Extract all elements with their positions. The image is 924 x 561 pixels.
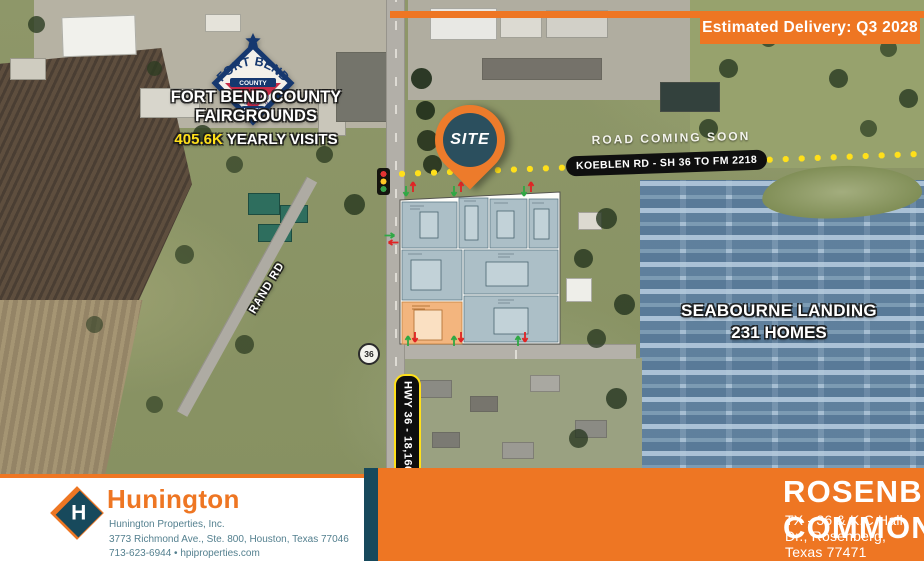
delivery-badge: Estimated Delivery: Q3 2028 <box>700 12 920 44</box>
hunington-logo-letter: H <box>71 502 86 526</box>
seabourne-name: SEABOURNE LANDING <box>648 300 910 322</box>
highway-36-shield: 36 <box>358 343 380 365</box>
project-address: TX - 36 & K.C Hall Dr., Rosenberg, Texas… <box>785 512 924 560</box>
pavilion-roof <box>248 193 280 215</box>
farm-building <box>578 212 602 230</box>
tree-cover <box>0 0 13 13</box>
rand-road <box>177 177 317 417</box>
site-pin-circle: SITE <box>443 113 497 167</box>
entrance-arrows <box>514 330 529 348</box>
crop-field <box>0 300 190 478</box>
hunington-logo-teal-diamond: H <box>56 491 103 538</box>
barn-roof <box>61 15 136 58</box>
south-residential-strip <box>396 358 642 478</box>
house-roof <box>530 375 560 392</box>
site-pin: SITE <box>435 105 505 175</box>
highway-36-shield-number: 36 <box>364 349 373 359</box>
fairgrounds-title-line2: FAIRGROUNDS <box>88 107 424 126</box>
fairgrounds-visits-label: YEARLY VISITS <box>223 131 338 148</box>
fairgrounds-caption: FORT BEND COUNTY FAIRGROUNDS 405.6K YEAR… <box>88 88 424 149</box>
fair-logo-county-text: COUNTY <box>239 80 267 87</box>
seabourne-caption: SEABOURNE LANDING 231 HOMES <box>648 300 910 344</box>
entrance-arrows <box>402 180 417 198</box>
seabourne-homes: 231 HOMES <box>648 322 910 344</box>
entrance-arrows <box>404 330 419 348</box>
dark-warehouse <box>660 82 720 112</box>
footer-teal-stripe <box>364 468 378 561</box>
footer-brand-panel: H Hunington Hunington Properties, Inc. 3… <box>0 474 364 561</box>
house-roof <box>470 396 498 412</box>
farm-building <box>566 278 592 302</box>
fairgrounds-visits: 405.6K YEARLY VISITS <box>88 131 424 149</box>
delivery-badge-label: Estimated Delivery: Q3 2028 <box>702 19 918 37</box>
traffic-light-icon <box>377 168 390 195</box>
entrance-arrows <box>450 330 465 348</box>
house-roof <box>432 432 460 448</box>
fairgrounds-title-line1: FORT BEND COUNTY <box>88 88 424 107</box>
house-roof <box>502 442 534 459</box>
footer-title-panel: ROSENBERG COMMONS TX - 36 & K.C Hall Dr.… <box>378 468 924 561</box>
footer-bar: H Hunington Hunington Properties, Inc. 3… <box>0 474 924 561</box>
fairgrounds-visits-value: 405.6K <box>174 131 222 148</box>
hunington-logo: H <box>54 490 100 536</box>
brand-name: Hunington <box>107 484 240 515</box>
warehouse-roof <box>482 58 602 80</box>
house-roof <box>420 380 452 398</box>
company-contact: 713-623-6944 • hpiproperties.com <box>109 547 349 561</box>
entrance-arrows <box>383 232 401 247</box>
company-address: 3773 Richmond Ave., Ste. 800, Houston, T… <box>109 533 349 548</box>
company-name: Hunington Properties, Inc. <box>109 518 349 533</box>
house-roof <box>575 420 607 438</box>
site-pin-label: SITE <box>450 131 490 149</box>
flyer-canvas: Estimated Delivery: Q3 2028 ROAD COMING … <box>0 0 924 561</box>
barn-roof <box>10 58 46 80</box>
barn-roof <box>205 14 241 32</box>
site-pin-body: SITE <box>421 91 520 190</box>
company-details: Hunington Properties, Inc. 3773 Richmond… <box>109 518 349 561</box>
entrance-arrows <box>520 180 535 198</box>
site-plan-overlay <box>398 186 562 348</box>
